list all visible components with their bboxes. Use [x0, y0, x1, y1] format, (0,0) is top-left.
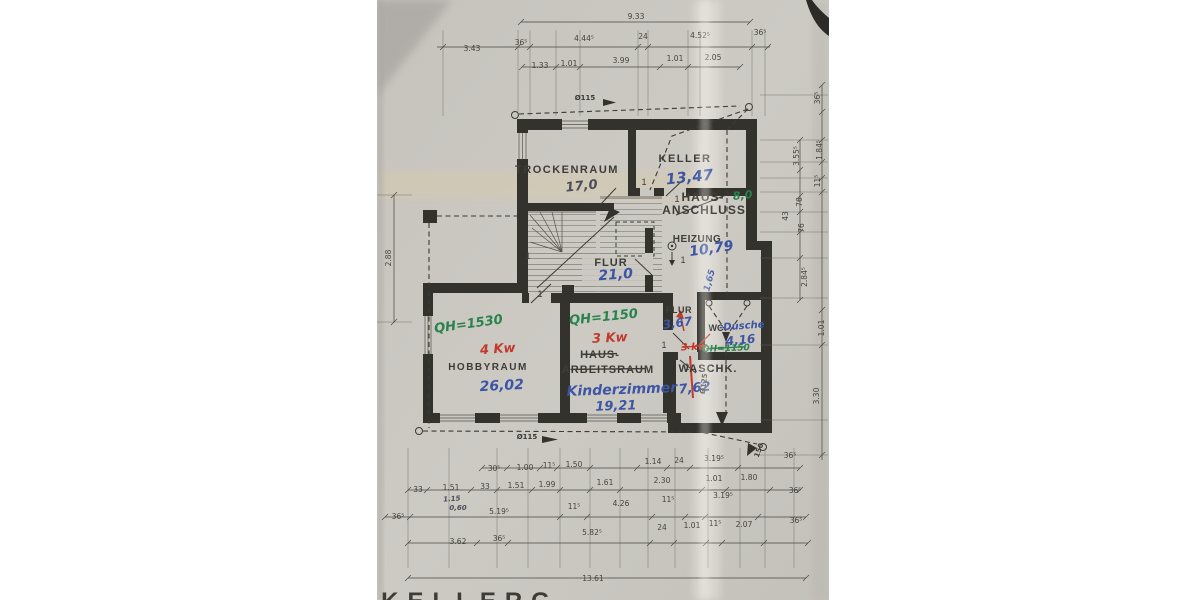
handwritten-pencil-note: 0,60: [449, 504, 466, 512]
dimension-label: 33: [480, 482, 490, 491]
dimension-label: 11⁵: [813, 175, 822, 188]
handwritten-area-value: 19,21: [595, 398, 637, 414]
dimension-label: 24: [657, 523, 667, 532]
dimension-label: 1.01: [667, 54, 684, 63]
dimension-label: 36⁵: [813, 92, 822, 105]
right-edge-shadow: [812, 0, 829, 600]
dimension-label: 4.26: [613, 499, 630, 508]
basement-floor-plan: TROCKENRAUMKELLERHAUS-ANSCHLUSSHEIZUNGFL…: [0, 0, 1200, 600]
dimension-label: 5.82⁵: [582, 528, 602, 537]
dimension-label: 1.61: [597, 478, 614, 487]
dimension-label: 3.43: [464, 44, 481, 53]
dimension-label: 36⁵: [515, 38, 528, 47]
dimension-label: 36⁵: [784, 451, 797, 460]
dimension-label: 2.07: [736, 520, 753, 529]
dimension-label: 36⁵: [493, 534, 506, 543]
pipe-diameter-label: Ø115: [517, 433, 538, 441]
dimension-label: 1.84⁵: [815, 140, 824, 160]
dimension-label: 1.01: [817, 319, 826, 336]
dimension-label: 11⁵: [568, 502, 581, 511]
door-number: 1: [674, 194, 679, 204]
door-number: 1: [680, 255, 685, 265]
dimension-label: 2.84⁵: [800, 267, 809, 287]
door-number: 1: [525, 251, 530, 261]
room-label: HOBBYRAUM: [448, 362, 528, 373]
room-label: KELLERG: [381, 588, 559, 600]
floor-plan-photo: TROCKENRAUMKELLERHAUS-ANSCHLUSSHEIZUNGFL…: [0, 0, 1200, 600]
door-number: 1: [641, 177, 646, 187]
dimension-label: 11⁵: [543, 461, 556, 470]
dimension-label: 1.51: [508, 481, 525, 490]
dimension-label: 3.30: [812, 387, 821, 404]
dimension-label: 1.50: [566, 460, 583, 469]
dimension-label: 2.88: [384, 249, 393, 266]
handwritten-power-note: 4 Kw: [478, 341, 517, 359]
door-number: 1: [537, 289, 542, 299]
dimension-label: 36⁵: [392, 512, 405, 521]
dimension-label: 9.33: [628, 12, 645, 21]
door-number: 1: [684, 362, 689, 372]
dimension-label: 36⁵: [754, 28, 767, 37]
strike-through: [583, 354, 617, 355]
dimension-label: 1.80: [741, 473, 758, 482]
dimension-label: 24: [638, 32, 648, 41]
handwritten-area-value: 26,02: [479, 377, 524, 395]
dimension-label: 36⁵: [789, 486, 802, 495]
dimension-label: 1.14: [645, 457, 662, 466]
dimension-label: 13.61: [582, 574, 604, 583]
dimension-label: 11⁵: [662, 495, 675, 504]
strike-through: [570, 369, 645, 370]
dimension-label: 2.30: [654, 476, 671, 485]
left-edge-shadow: [377, 0, 383, 600]
pipe-diameter-label: Ø115: [575, 94, 596, 102]
dimension-label: 3.62: [450, 537, 467, 546]
dimension-label: 3.19⁵: [713, 491, 733, 500]
handwritten-qh-note: 8,0: [732, 188, 753, 203]
dimension-label: 1.33: [532, 61, 549, 70]
fold-highlight: [700, 0, 710, 600]
dimension-label: 76: [797, 223, 806, 233]
handwritten-power-note: 3 Kw: [592, 330, 629, 347]
dimension-label: 1.00: [517, 463, 534, 472]
dimension-label: 36⁵: [790, 516, 803, 525]
dimension-label: 43: [781, 211, 790, 221]
dimension-label: 3.99: [613, 56, 630, 65]
handwritten-pencil-note: 1.15: [443, 494, 461, 503]
dimension-label: 11⁵: [709, 519, 722, 528]
dimension-label: 30⁵: [488, 464, 501, 473]
dimension-label: 24: [674, 456, 684, 465]
dimension-label: 33: [413, 485, 423, 494]
dimension-label: 1.51: [443, 483, 460, 492]
dimension-label: 5.19⁵: [489, 507, 509, 516]
dimension-label: 1.01: [684, 521, 701, 530]
chimney-block: [423, 210, 437, 223]
dimension-label: 1.01: [561, 59, 578, 68]
dimension-label: 76: [795, 197, 804, 207]
dimension-label: 1.99: [539, 480, 556, 489]
handwritten-area-value: 21,0: [598, 266, 634, 284]
door-number: 1: [661, 340, 666, 350]
dimension-label: 3.55⁵: [792, 146, 801, 166]
room-label: TROCKENRAUM: [515, 164, 619, 176]
dimension-label: 4.44⁵: [574, 34, 594, 43]
